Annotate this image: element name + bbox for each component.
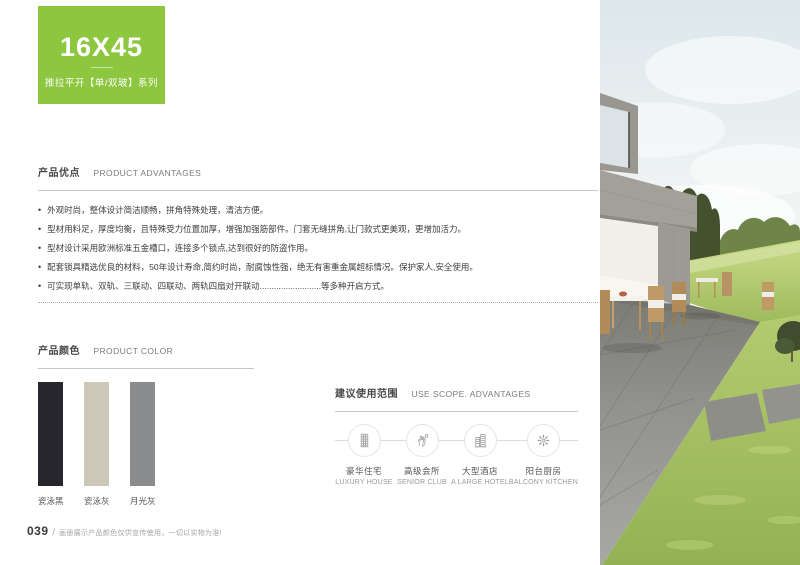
colors-title: 产品颜色 PRODUCT COLOR	[38, 341, 254, 359]
scope-label-cn: 高级会所	[393, 465, 451, 477]
section-divider	[38, 190, 598, 191]
series-header: 16X45 推拉平开【单/双玻】系列	[38, 6, 165, 104]
catalog-page: 16X45 推拉平开【单/双玻】系列 产品优点 PRODUCT ADVANTAG…	[0, 0, 800, 565]
color-swatch-bar	[38, 382, 63, 486]
bullet-icon: •	[38, 243, 41, 253]
use-scope-title-cn: 建议使用范围	[335, 389, 398, 400]
luxury-house-icon	[348, 424, 381, 457]
scope-item-senior-club: 高级会所 SENIOR CLUB	[393, 424, 451, 486]
color-swatch-bar	[84, 382, 109, 486]
scope-item-large-hotel: 大型酒店 A LARGE HOTEL	[451, 424, 509, 486]
bullet-icon: •	[38, 262, 41, 272]
scope-label-cn: 大型酒店	[451, 465, 509, 477]
terrace-photo	[600, 0, 800, 565]
bullet-icon: •	[38, 224, 41, 234]
use-scope-title: 建议使用范围 USE SCOPE. ADVANTAGES	[335, 384, 578, 402]
color-swatch: 月光灰	[130, 382, 155, 507]
advantage-item: •型材用料足，厚度均衡，且特殊受力位置加厚，增强加强筋部件。门套无缝拼角,让门款…	[38, 220, 598, 239]
advantage-item: •可实现单轨、双轨、三联动、四联动、两轨四扇对开联动..............…	[38, 277, 598, 296]
footer-note: 画册展示产品颜色仅供宣传使用，一切以实物为准!	[59, 528, 222, 538]
colors-title-en: PRODUCT COLOR	[93, 346, 173, 356]
bullet-icon: •	[38, 281, 41, 291]
scope-label-en: BALCONY KITCHEN	[509, 479, 578, 486]
scope-label-en: A LARGE HOTEL	[451, 479, 509, 486]
swatch-row: 瓷泳黑 瓷泳灰 月光灰	[38, 382, 254, 507]
series-divider	[91, 67, 113, 68]
advantage-text: 型材设计采用欧洲标准五金槽口，连接多个锁点,达到很好的防盗作用。	[47, 243, 313, 253]
advantage-text: 外观时尚，整体设计简洁顺畅，拼角特殊处理，清洁方便。	[47, 205, 268, 215]
page-number: 039	[27, 524, 49, 538]
color-swatch-label: 月光灰	[130, 495, 155, 507]
colors-title-cn: 产品颜色	[38, 346, 80, 357]
color-swatch: 瓷泳黑	[38, 382, 63, 507]
scope-label-en: SENIOR CLUB	[393, 479, 451, 486]
scope-item-luxury-house: 豪华住宅 LUXURY HOUSE	[335, 424, 393, 486]
scope-item-balcony-kitchen: 阳台厨房 BALCONY KITCHEN	[509, 424, 578, 486]
advantages-title-en: PRODUCT ADVANTAGES	[93, 168, 201, 178]
footer-separator: /	[53, 527, 56, 537]
scope-label-cn: 阳台厨房	[509, 465, 578, 477]
scope-label-cn: 豪华住宅	[335, 465, 393, 477]
section-divider	[335, 411, 578, 412]
use-scope-title-en: USE SCOPE. ADVANTAGES	[411, 389, 530, 399]
color-swatch-label: 瓷泳灰	[84, 495, 109, 507]
advantages-list: •外观时尚，整体设计简洁顺畅，拼角特殊处理，清洁方便。 •型材用料足，厚度均衡，…	[38, 201, 598, 296]
dotted-divider	[38, 302, 598, 303]
advantage-item: •外观时尚，整体设计简洁顺畅，拼角特殊处理，清洁方便。	[38, 201, 598, 220]
balcony-kitchen-icon	[527, 424, 560, 457]
advantages-title: 产品优点 PRODUCT ADVANTAGES	[38, 163, 598, 181]
use-scope-icons-row: 豪华住宅 LUXURY HOUSE 高级会所 SENIOR CLUB	[335, 424, 578, 486]
advantage-item: •型材设计采用欧洲标准五金槽口，连接多个锁点,达到很好的防盗作用。	[38, 239, 598, 258]
advantage-text: 配套锁具精选优良的材料，50年设计寿命,简约时尚，耐腐蚀性强，绝无有害重金属超标…	[47, 262, 478, 272]
product-color-section: 产品颜色 PRODUCT COLOR 瓷泳黑 瓷泳灰 月光灰	[38, 341, 254, 507]
color-swatch-bar	[130, 382, 155, 486]
series-name: 推拉平开【单/双玻】系列	[38, 75, 165, 89]
series-code: 16X45	[38, 32, 165, 62]
page-footer: 039 / 画册展示产品颜色仅供宣传使用，一切以实物为准!	[27, 524, 222, 538]
use-scope-section: 建议使用范围 USE SCOPE. ADVANTAGES 豪华住宅 LUXURY…	[335, 384, 578, 486]
section-divider	[38, 368, 254, 369]
advantage-text: 可实现单轨、双轨、三联动、四联动、两轨四扇对开联动...............…	[47, 281, 389, 291]
large-hotel-icon	[464, 424, 497, 457]
terrace-photo-art	[600, 0, 800, 565]
color-swatch: 瓷泳灰	[84, 382, 109, 507]
advantage-item: •配套锁具精选优良的材料，50年设计寿命,简约时尚，耐腐蚀性强，绝无有害重金属超…	[38, 258, 598, 277]
product-advantages-section: 产品优点 PRODUCT ADVANTAGES •外观时尚，整体设计简洁顺畅，拼…	[38, 163, 598, 303]
bullet-icon: •	[38, 205, 41, 215]
senior-club-icon	[406, 424, 439, 457]
advantage-text: 型材用料足，厚度均衡，且特殊受力位置加厚，增强加强筋部件。门套无缝拼角,让门款式…	[47, 224, 466, 234]
color-swatch-label: 瓷泳黑	[38, 495, 63, 507]
advantages-title-cn: 产品优点	[38, 168, 80, 179]
scope-label-en: LUXURY HOUSE	[335, 479, 393, 486]
